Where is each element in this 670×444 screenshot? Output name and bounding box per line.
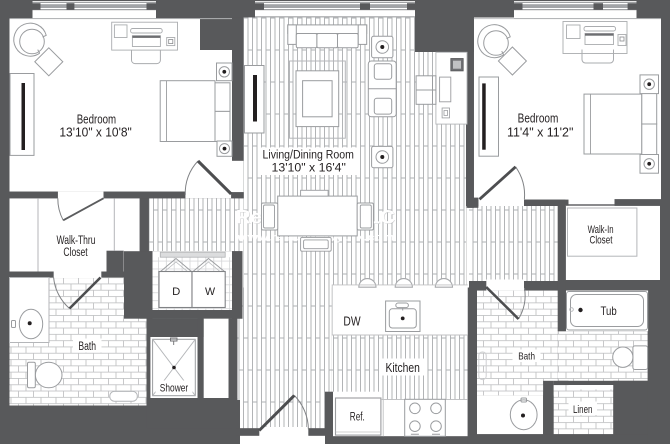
svg-text:Closet: Closet xyxy=(63,247,88,259)
svg-text:Bedroom: Bedroom xyxy=(518,111,559,126)
svg-text:11'4" x 11'2": 11'4" x 11'2" xyxy=(507,125,574,140)
svg-text:Kitchen: Kitchen xyxy=(385,361,420,375)
svg-text:Bath: Bath xyxy=(78,341,96,353)
svg-text:13'10" x 16'4": 13'10" x 16'4" xyxy=(272,163,346,175)
svg-text:Living/Dining Room: Living/Dining Room xyxy=(263,150,354,162)
svg-text:Tub: Tub xyxy=(601,304,617,318)
svg-text:W: W xyxy=(205,286,216,298)
svg-text:13'10" x 10'8": 13'10" x 10'8" xyxy=(59,124,132,139)
svg-text:Bath: Bath xyxy=(518,351,535,363)
svg-text:Shower: Shower xyxy=(160,382,189,394)
svg-text:Closet: Closet xyxy=(590,234,613,246)
svg-text:DW: DW xyxy=(343,315,360,329)
svg-text:Linen: Linen xyxy=(573,404,592,416)
svg-text:D: D xyxy=(172,286,180,298)
svg-text:Walk-Thru: Walk-Thru xyxy=(56,235,95,247)
svg-text:Ref.: Ref. xyxy=(350,412,365,424)
